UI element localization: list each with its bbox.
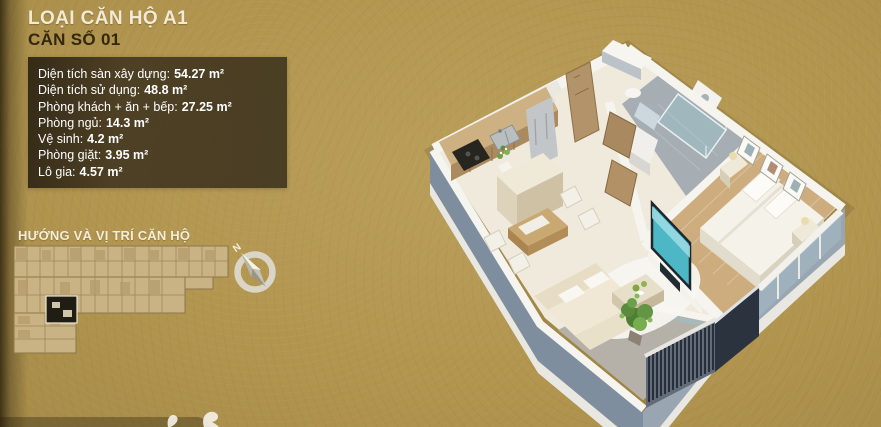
balcony-dark-panel (715, 286, 759, 372)
spec-row-usable-area: Diện tích sử dụng:48.8 m² (38, 82, 287, 98)
kitchen-area (439, 86, 560, 181)
kitchen-counter (439, 87, 558, 165)
nightstands (720, 152, 820, 253)
balcony-sliding-door (612, 305, 712, 326)
tv-screen (652, 203, 690, 288)
walls (433, 48, 843, 409)
balcony-floor (558, 300, 712, 400)
wall-picture-frames (737, 136, 806, 201)
cooktop-icon (452, 139, 490, 171)
toilet-icon (625, 88, 641, 98)
main-floor (436, 52, 836, 400)
sink-icon (490, 125, 520, 150)
apartment-specs-panel: Diện tích sàn xây dựng:54.27 m² Diện tíc… (28, 57, 287, 188)
bed (700, 168, 824, 290)
bathroom-vanity (622, 102, 660, 176)
dining-chairs (484, 186, 600, 274)
kitchen-island (497, 153, 563, 229)
selected-unit-marker[interactable] (46, 296, 77, 323)
compass-north-label: N (231, 242, 243, 255)
spec-row-bathroom: Vệ sinh:4.2 m² (38, 131, 287, 147)
rug (567, 238, 713, 356)
flower-vase-icon (497, 146, 512, 174)
fridge-icon (526, 97, 558, 169)
apartment-detail-page: LOẠI CĂN HỘ A1 CĂN SỐ 01 Diện tích sàn x… (0, 0, 881, 427)
spec-row-laundry: Phòng giặt:3.95 m² (38, 147, 287, 163)
spec-row-floor-area: Diện tích sàn xây dựng:54.27 m² (38, 66, 287, 82)
closet-door (603, 112, 636, 158)
bedroom-window (759, 211, 841, 317)
exterior-walls (430, 147, 845, 427)
spec-row-loggia: Lô gia:4.57 m² (38, 164, 287, 180)
minimap-stub (185, 277, 213, 289)
bathroom-door (605, 160, 637, 206)
dining-table (508, 208, 568, 256)
building-shadow (424, 40, 855, 424)
bedroom-floor (645, 139, 838, 320)
spec-row-living-kitchen: Phòng khách + ăn + bếp:27.25 m² (38, 99, 287, 115)
plant-icon (620, 294, 654, 347)
spec-row-bedroom: Phòng ngủ:14.3 m² (38, 115, 287, 131)
page-title: LOẠI CĂN HỘ A1 (28, 8, 188, 30)
tv-media-wall (648, 203, 702, 315)
washing-machine-icon (688, 80, 722, 116)
sofa (534, 263, 652, 350)
unit-number-subtitle: CĂN SỐ 01 (28, 30, 120, 50)
entrance-parapet (602, 40, 652, 80)
balcony-louver-railing (645, 319, 716, 408)
entrance-door (566, 62, 599, 142)
compass-icon: N (222, 240, 288, 306)
bathroom-floor (622, 74, 750, 196)
cropped-script-decoration (140, 403, 250, 427)
shower-glass (658, 94, 726, 158)
doors (566, 62, 637, 206)
coffee-table (612, 274, 664, 319)
